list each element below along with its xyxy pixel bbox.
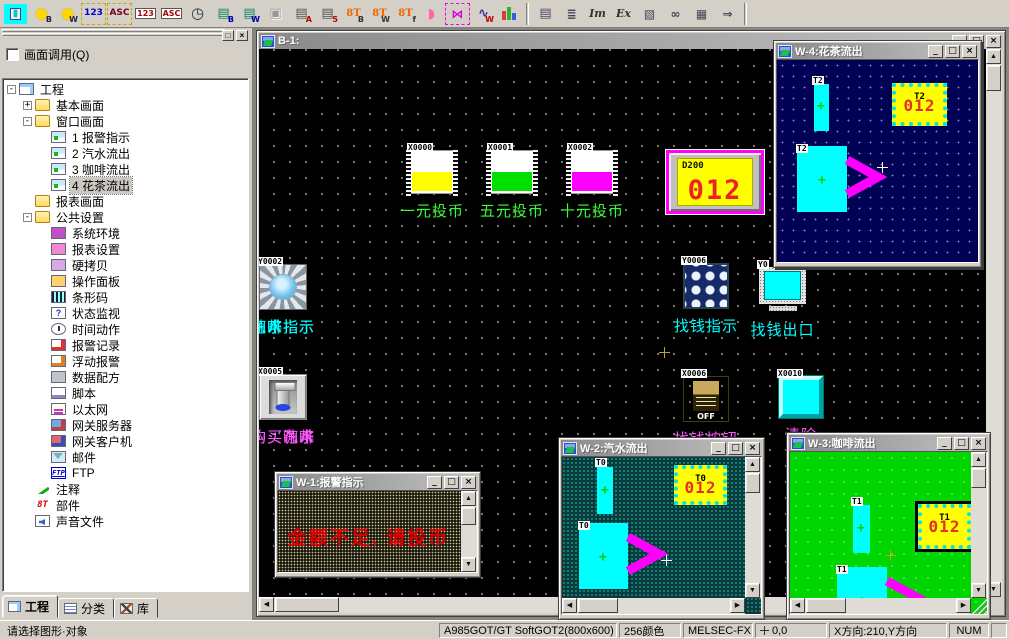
workspace-panel: □ × 画面调用(Q) - 工程 + 基本画面 - 窗口画 [0, 28, 253, 620]
tree-item-parts[interactable]: 8T 部件 [3, 497, 248, 513]
toolbar-separator [526, 3, 529, 25]
w3-scroll-up-button[interactable]: ▲ [971, 452, 986, 467]
w4-display[interactable]: T2 012 [892, 83, 947, 126]
w3-tank[interactable]: + [853, 505, 870, 553]
w1-vscroll-thumb[interactable] [461, 507, 476, 525]
w1-title: W-1:报警指示 [296, 474, 364, 490]
tree-item-icon [51, 243, 66, 255]
ascii-display-icon[interactable]: ASC [159, 3, 184, 25]
library-tab-icon [120, 603, 133, 614]
w3-scroll-right-button[interactable]: ▶ [956, 598, 971, 613]
w3-minimize-button[interactable]: _ [937, 437, 952, 450]
w1-titlebar[interactable]: W-1:报警指示 _ □ × [277, 474, 478, 490]
w3-scroll-down-button[interactable]: ▼ [971, 583, 986, 598]
buy-button-body [259, 374, 307, 420]
grid-icon[interactable]: ▦ [689, 3, 714, 25]
tree-item-ftp[interactable]: FTP FTP [3, 465, 248, 481]
w4-minimize-button[interactable]: _ [928, 45, 943, 58]
app-window: S▾●B●W123ASC123ASC◷▤B▤W▣▤A▤58TB8TW8Tf◗▮⋈… [0, 0, 1009, 639]
b1-title: B-1: [278, 35, 299, 47]
w2-scroll-down-button[interactable]: ▼ [745, 583, 760, 598]
comment-display-b-icon[interactable]: ▤B [211, 3, 236, 25]
w1-scroll-up-button[interactable]: ▲ [461, 491, 476, 506]
w2-scroll-left-button[interactable]: ◀ [562, 598, 577, 613]
parts-display-b-icon[interactable]: 8TB [341, 3, 366, 25]
cup-shape [578, 521, 670, 591]
tree-item-icon [51, 435, 66, 447]
status-plc-type: MELSEC-FX [683, 623, 753, 638]
comment-display-w-icon[interactable]: ▤W [237, 3, 262, 25]
w4-cup[interactable]: T2 + [796, 144, 888, 214]
tree-expander[interactable]: - [23, 117, 32, 126]
tree-item-icon [35, 211, 50, 223]
buy-button-slot [269, 380, 297, 414]
change-outlet-screen [764, 271, 801, 300]
b1-close-button[interactable]: × [986, 35, 1001, 48]
buy-button-plunger [277, 383, 290, 407]
w1-vscrollbar[interactable]: ▲ ▼ [461, 491, 477, 572]
alarm-history-icon[interactable]: ▤A [289, 3, 314, 25]
parts-display-w-icon[interactable]: 8TW [367, 3, 392, 25]
screen-window-icon [778, 45, 792, 58]
clear-button[interactable]: X0010 清除 [779, 376, 823, 418]
tree-item-icon [51, 323, 66, 335]
window-w3: W-3:咖啡流出 _ □ × T1 + T1 012 [786, 432, 991, 620]
w2-hscrollbar[interactable]: ◀ ▶ [562, 598, 745, 614]
w1-close-button[interactable]: × [461, 476, 476, 489]
grid-lamp-body [683, 263, 729, 309]
status-colors: 256颜色 [619, 623, 681, 638]
ascii-input-icon[interactable]: ASC [107, 3, 132, 25]
cursor-crosshair [877, 162, 888, 173]
status-direction: X方向:210,Y方向 [829, 623, 947, 638]
coin-switch-body [569, 150, 615, 194]
w2-scroll-right-button[interactable]: ▶ [730, 598, 745, 613]
w3-tank-tag: T1 [851, 497, 863, 506]
w2-vscrollbar[interactable]: ▲ ▼ [745, 457, 761, 598]
tree-item-project[interactable]: - 工程 [3, 81, 248, 97]
w2-restore-button[interactable]: □ [728, 442, 743, 455]
w3-resize-grip[interactable] [972, 599, 987, 614]
tree-item-icon [51, 387, 66, 399]
cursor-crosshair [661, 555, 672, 566]
window-w2: W-2:汽水流出 _ □ × T0 + T0 012 [558, 437, 765, 620]
tree-item-icon [35, 115, 50, 127]
status-spare [991, 623, 1007, 638]
free-figure-icon[interactable]: ⋈ [445, 3, 470, 25]
tree-item-icon [19, 83, 34, 95]
tree-item-icon [35, 99, 50, 111]
lamp-tea[interactable]: Y0002 花茶指示 [259, 264, 307, 310]
tab-project[interactable]: 工程 [2, 595, 58, 618]
tree-item-icon [35, 195, 50, 207]
w2-title: W-2:汽水流出 [580, 440, 648, 456]
w2-cup[interactable]: T0 + [578, 521, 670, 591]
w2-display[interactable]: T0 012 [674, 465, 727, 505]
w2-scroll-up-button[interactable]: ▲ [745, 457, 760, 472]
status-device: A985GOT/GT SoftGOT2(800x600) [439, 623, 617, 638]
w2-minimize-button[interactable]: _ [711, 442, 726, 455]
tree-item-screen-2[interactable]: 2 汽水流出 [3, 145, 248, 161]
change-button-switch [693, 381, 719, 411]
b1-vscroll-thumb[interactable] [986, 65, 1001, 91]
line-graph-icon[interactable]: ∿W [471, 3, 496, 25]
tree-item-window-screens[interactable]: - 窗口画面 [3, 113, 248, 129]
tree-expander[interactable]: - [7, 85, 16, 94]
change-outlet-frame [759, 267, 806, 304]
bar-graph-icon[interactable] [497, 3, 522, 25]
w4-restore-button[interactable]: □ [945, 45, 960, 58]
tree-expander[interactable]: - [23, 213, 32, 222]
window-w1: W-1:报警指示 _ □ × 金额不足, 请投币 ▲ ▼ [274, 471, 481, 578]
mdi-area: B-1: _ □ × X0000 [253, 28, 1009, 620]
tree-item-barcode[interactable]: 条形码 [3, 289, 248, 305]
amount-display-d200[interactable]: D200 012 [666, 150, 764, 214]
tree-item-icon [51, 227, 66, 239]
change-outlet-base [769, 306, 797, 311]
tree-item-common-settings[interactable]: - 公共设置 [3, 209, 248, 225]
coin-switch-1yuan[interactable]: X0000 一元投币 [409, 150, 455, 194]
w4-titlebar[interactable]: W-4:花茶流出 _ □ × [776, 43, 979, 59]
w3-hscrollbar[interactable]: ◀ ▶ [790, 598, 971, 614]
w1-scroll-down-button[interactable]: ▼ [461, 557, 476, 572]
change-button-body: OFF [683, 376, 729, 422]
tree-item-hardcopy[interactable]: 硬拷贝 [3, 257, 248, 273]
tree-item-icon [51, 291, 66, 303]
w4-canvas[interactable]: T2 + T2 012 T2 + [776, 59, 979, 263]
w2-tank[interactable]: + [597, 467, 613, 514]
lamp-b-icon[interactable]: ●B [29, 3, 54, 25]
tree-item-icon [51, 275, 66, 287]
find-icon[interactable]: ∞ [663, 3, 688, 25]
tank-icon[interactable]: ▮ [3, 3, 28, 25]
w4-tank-tag: T2 [812, 76, 824, 85]
tree-item-icon [51, 147, 66, 159]
w3-vscrollbar[interactable]: ▲ ▼ [971, 452, 987, 598]
w3-vscroll-thumb[interactable] [971, 468, 986, 488]
screen-window-icon [261, 35, 275, 48]
w2-cup-tag: T0 [578, 521, 590, 530]
tree-item-system-env[interactable]: 系统环境 [3, 225, 248, 241]
toolbar-group-tools: ▤≣ImEx▧∞▦⇒ [533, 3, 740, 25]
coin-switch-body [489, 150, 535, 194]
alarm-list-icon[interactable]: ▤5 [315, 3, 340, 25]
tree-item-script[interactable]: 脚本 [3, 385, 248, 401]
w3-display[interactable]: T1 012 [918, 504, 971, 549]
tree-item-data-recipe[interactable]: 数据配方 [3, 369, 248, 385]
coin-switch-fill [572, 172, 612, 191]
tree-item-icon [51, 355, 66, 367]
tree-item-report-screens[interactable]: 报表画面 [3, 193, 248, 209]
cup-shape [796, 144, 888, 214]
object-toolbar: S▾●B●W123ASC123ASC◷▤B▤W▣▤A▤58TB8TW8Tf◗▮⋈… [0, 0, 1009, 28]
tree-item-sound-files[interactable]: 声音文件 [3, 513, 248, 529]
w2-hscroll-thumb[interactable] [578, 598, 618, 613]
lamp-body [259, 264, 307, 310]
panel-meter-icon[interactable]: ◗ [419, 3, 444, 25]
status-num-lock: NUM [949, 623, 989, 638]
import-icon[interactable]: Im [585, 3, 610, 25]
export-icon[interactable]: Ex [611, 3, 636, 25]
tree-item-ethernet[interactable]: 以太网 [3, 401, 248, 417]
tree-item-icon [51, 131, 66, 143]
w2-canvas[interactable]: T0 + T0 012 T0 + ▲ [561, 456, 762, 615]
w2-close-button[interactable]: × [745, 442, 760, 455]
tree-expander[interactable]: + [23, 101, 32, 110]
w1-restore-button[interactable]: □ [444, 476, 459, 489]
clear-button-body [779, 376, 823, 418]
canvas-cross-marker [659, 347, 670, 358]
workspace-tabs: 工程 分类 库 [2, 594, 158, 618]
alarm-message[interactable]: 金额不足, 请投币 [278, 523, 459, 550]
b1-scroll-left-button[interactable]: ◀ [259, 597, 274, 612]
lamp-w-icon[interactable]: ●W [55, 3, 80, 25]
window-w4: W-4:花茶流出 _ □ × T2 + T2 012 [773, 40, 982, 268]
tree-item-screen-3[interactable]: 3 咖啡流出 [3, 161, 248, 177]
tree-item-operation-panel[interactable]: 操作面板 [3, 273, 248, 289]
w3-title: W-3:咖啡流出 [808, 435, 876, 451]
w3-canvas[interactable]: T1 + T1 012 T1 + ▲ [789, 451, 988, 615]
tree-item-screen-1[interactable]: 1 报警指示 [3, 129, 248, 145]
tree-item-icon [35, 483, 50, 495]
w3-scroll-left-button[interactable]: ◀ [790, 598, 805, 613]
change-button-state: OFF [684, 412, 728, 421]
preview-icon[interactable]: ▧ [637, 3, 662, 25]
lamp-change[interactable]: Y0006 找钱指示 [683, 263, 729, 309]
tree-item-icon [51, 259, 66, 271]
tree-item-icon [51, 339, 66, 351]
clock-display-icon[interactable]: ◷ [185, 3, 210, 25]
screen-call-label: 画面调用(Q) [24, 46, 89, 63]
project-tree: - 工程 + 基本画面 - 窗口画面 1 报警指示 [2, 78, 249, 592]
crosshair-icon [760, 626, 769, 635]
tree-item-icon: FTP [51, 467, 66, 479]
parts-display-f-icon[interactable]: 8Tf [393, 3, 418, 25]
w2-vscroll-thumb[interactable] [745, 473, 760, 493]
tree-item-base-screens[interactable]: + 基本画面 [3, 97, 248, 113]
change-outlet[interactable]: Y0 找钱出口 [759, 267, 806, 311]
toolbar-group-objects: S▾●B●W123ASC123ASC◷▤B▤W▣▤A▤58TB8TW8Tf◗▮⋈… [3, 3, 522, 25]
numeric-display-icon[interactable]: 123 [133, 3, 158, 25]
w4-title: W-4:花茶流出 [795, 43, 863, 59]
tree-item-icon [51, 403, 66, 415]
tree-item-alarm-record[interactable]: 报警记录 [3, 337, 248, 353]
w2-tank-tag: T0 [595, 458, 607, 467]
panel-grip[interactable]: □ × [2, 29, 250, 43]
tree-item-time-action[interactable]: 时间动作 [3, 321, 248, 337]
w2-titlebar[interactable]: W-2:汽水流出 _ □ × [561, 440, 762, 456]
coin-switch-fill [492, 172, 532, 191]
next-icon[interactable]: ⇒ [715, 3, 740, 25]
tree-item-icon [51, 451, 66, 463]
status-coordinates: 0,0 [755, 623, 827, 638]
w1-minimize-button[interactable]: _ [427, 476, 442, 489]
w3-cup-tag: T1 [836, 565, 848, 574]
w4-close-button[interactable]: × [962, 45, 977, 58]
panel-maximize-button[interactable]: □ [222, 30, 234, 41]
panel-close-button[interactable]: × [236, 30, 248, 41]
report-icon[interactable]: ▤ [533, 3, 558, 25]
tree-item-gateway-server[interactable]: 网关服务器 [3, 417, 248, 433]
tree-item-icon [51, 179, 66, 191]
tree-item-gateway-client[interactable]: 网关客户机 [3, 433, 248, 449]
change-button[interactable]: X0006 OFF 找钱按钮 [683, 376, 729, 422]
tree-item-mail[interactable]: 邮件 [3, 449, 248, 465]
project-tab-icon [8, 601, 21, 612]
w3-restore-button[interactable]: □ [954, 437, 969, 450]
button-buy-tea[interactable]: X0005 购买花茶 [259, 374, 307, 420]
tree-item-report-settings[interactable]: 报表设置 [3, 241, 248, 257]
tree-item-comment[interactable]: 注释 [3, 481, 248, 497]
screen-call-checkbox[interactable] [6, 48, 19, 61]
numeric-input-icon[interactable]: 123 [81, 3, 106, 25]
toolbar-separator [744, 3, 747, 25]
tree-item-icon [35, 515, 50, 527]
tree-item-icon [51, 419, 66, 431]
canvas-cross-marker [885, 550, 896, 561]
coin-switch-5yuan[interactable]: X0001 五元投币 [489, 150, 535, 194]
coin-switch-10yuan[interactable]: X0002 十元投币 [569, 150, 615, 194]
tree-item-icon [51, 371, 66, 383]
coin-switch-body [409, 150, 455, 194]
coin-switch-fill [412, 172, 452, 191]
screen-window-icon [279, 476, 293, 489]
tree-item-screen-4[interactable]: 4 花茶流出 [3, 177, 248, 193]
tree-item-icon [51, 307, 66, 319]
outline-list-icon[interactable]: ≣ [559, 3, 584, 25]
screen-window-icon [563, 442, 577, 455]
w3-titlebar[interactable]: W-3:咖啡流出 _ □ × [789, 435, 988, 451]
screen-window-icon [791, 437, 805, 450]
b1-hscroll-thumb[interactable] [275, 597, 339, 612]
tree-item-status-watch[interactable]: 状态监视 [3, 305, 248, 321]
status-hint: 请选择图形·对象 [2, 623, 437, 638]
tree-item-icon [51, 163, 66, 175]
tree-item-floating-alarm[interactable]: 浮动报警 [3, 353, 248, 369]
paste-disabled-icon[interactable]: ▣ [263, 3, 288, 25]
w3-close-button[interactable]: × [971, 437, 986, 450]
b1-scroll-up-button[interactable]: ▲ [986, 49, 1001, 64]
category-tab-icon [64, 603, 77, 614]
w1-canvas[interactable]: 金额不足, 请投币 ▲ ▼ [277, 490, 478, 573]
status-bar: 请选择图形·对象 A985GOT/GT SoftGOT2(800x600) 25… [0, 620, 1009, 639]
w3-hscroll-thumb[interactable] [806, 598, 846, 613]
w4-cup-tag: T2 [796, 144, 808, 153]
tree-item-icon: 8T [35, 499, 50, 511]
w4-tank[interactable]: + [814, 84, 829, 131]
amount-display-face: D200 012 [677, 158, 753, 206]
tab-library[interactable]: 库 [114, 598, 158, 618]
tab-category[interactable]: 分类 [58, 598, 114, 618]
